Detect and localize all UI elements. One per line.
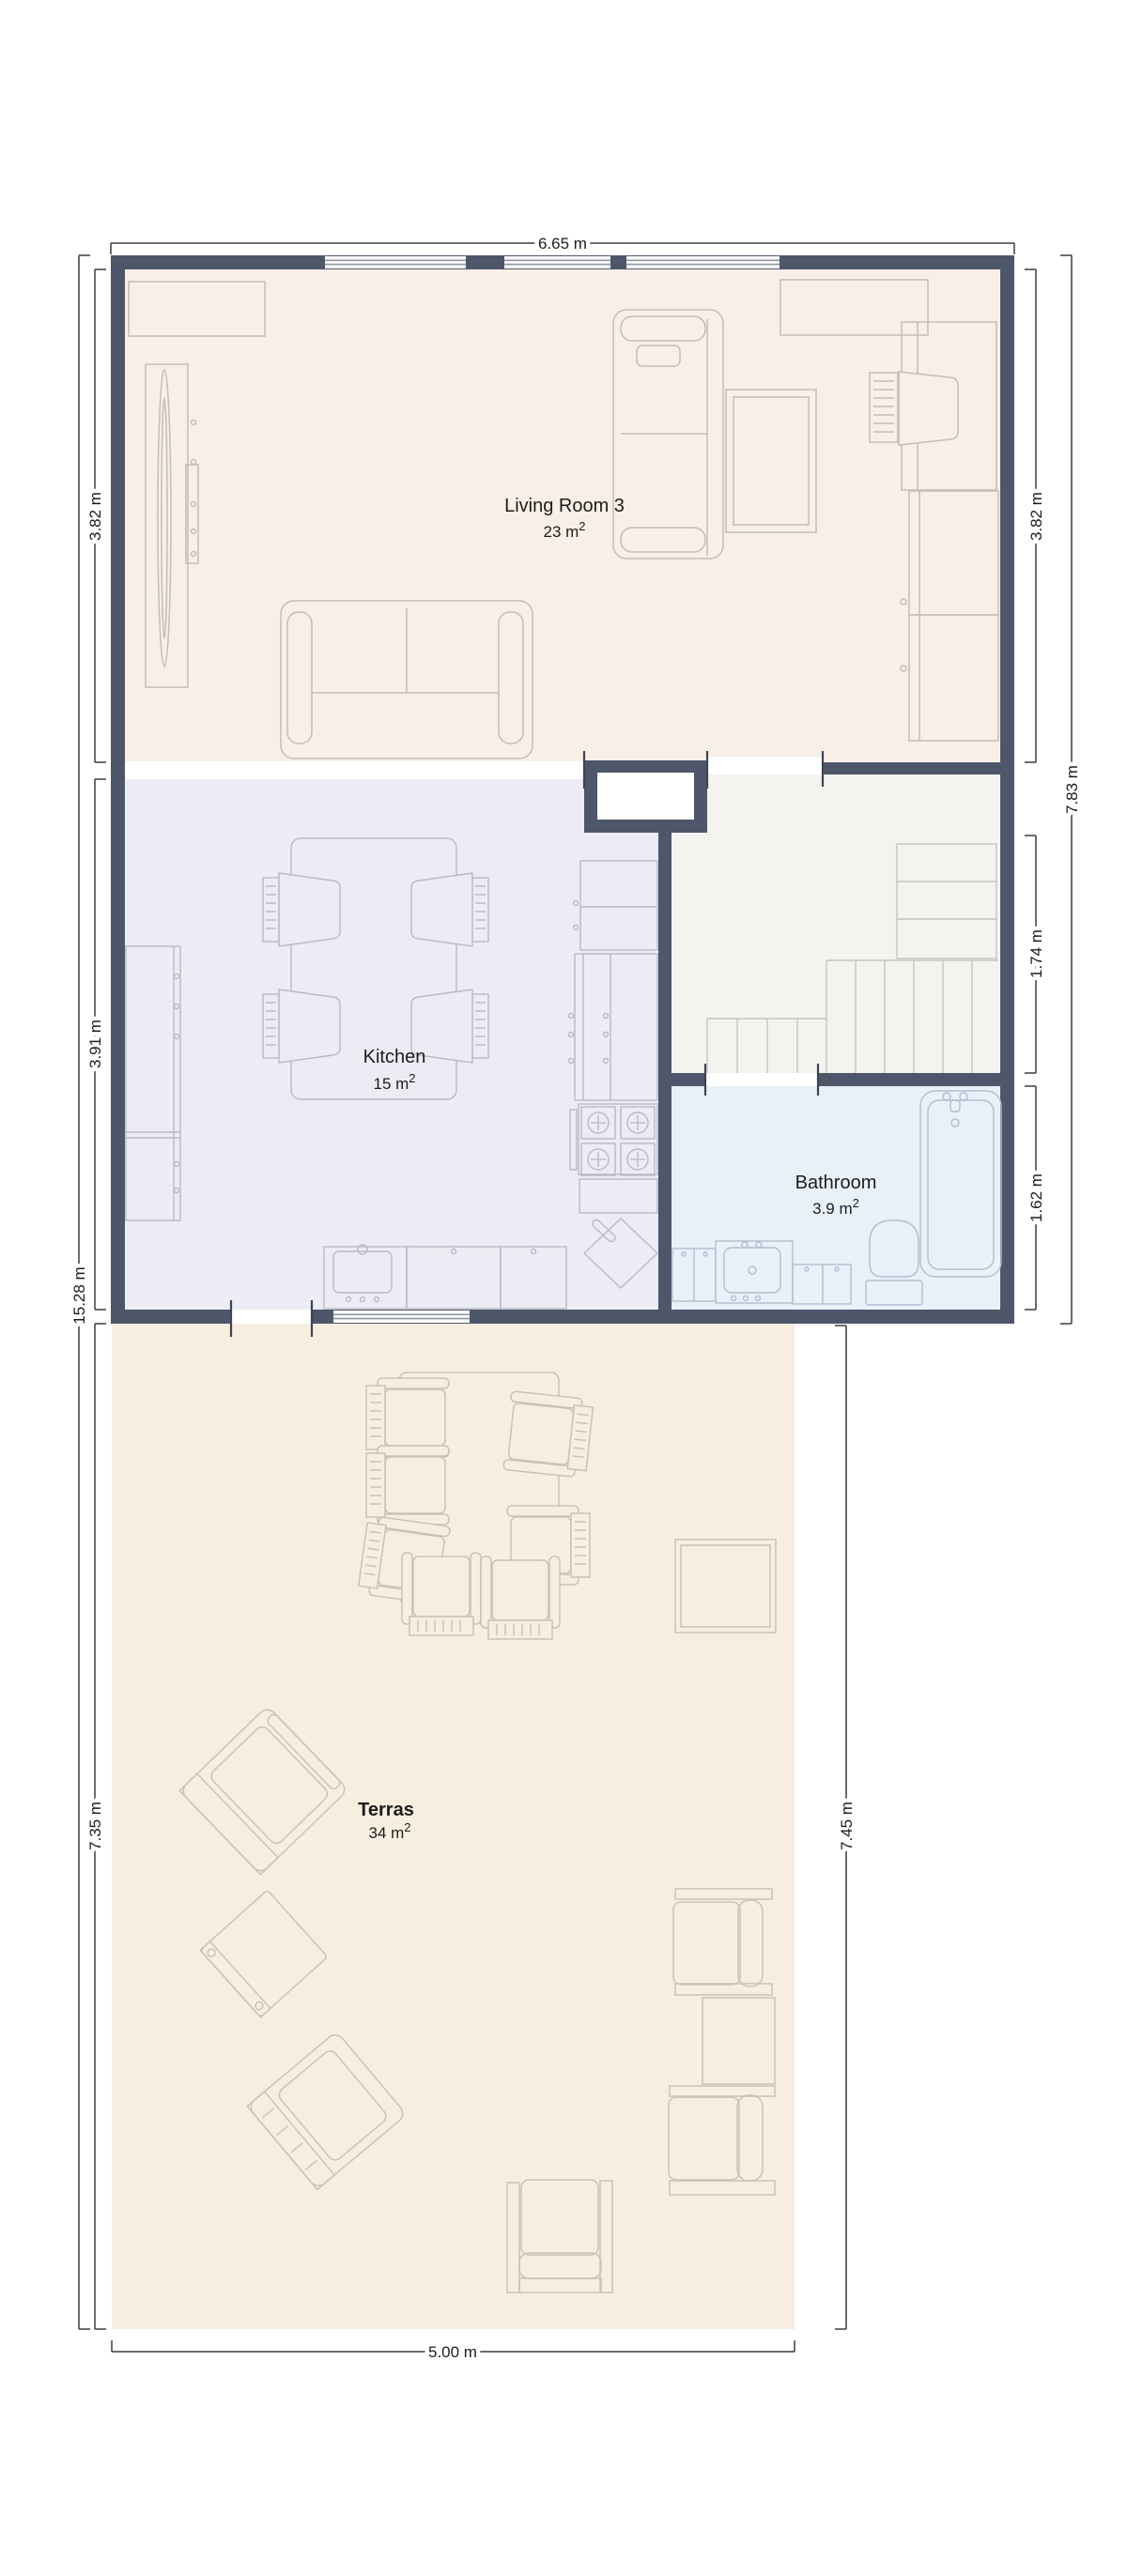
terrace-chair-bottom-2 <box>481 1556 560 1639</box>
floor-plan-canvas: Living Room 3 23 m2 Kitchen 15 m2 Bathro… <box>0 0 1127 2576</box>
svg-text:5.00 m: 5.00 m <box>428 2343 477 2361</box>
bathroom-area: 3.9 m2 <box>812 1196 859 1218</box>
wall-left <box>111 255 125 1324</box>
kitchen-chair-top-left <box>263 873 340 946</box>
wall-kitchen-hall-divider <box>658 826 672 1310</box>
svg-text:3.91 m: 3.91 m <box>86 1020 104 1068</box>
window-top-1 <box>325 256 466 268</box>
hall-opening-floor <box>707 757 823 774</box>
living-kitchen-open-boundary <box>125 761 584 779</box>
terrace-label: Terras <box>358 1800 414 1820</box>
desk-chair <box>870 372 958 445</box>
wall-right <box>1000 255 1014 1324</box>
kitchen-floor <box>125 779 658 1310</box>
svg-text:7.35 m: 7.35 m <box>86 1802 104 1850</box>
svg-text:7.45 m: 7.45 m <box>838 1802 856 1850</box>
closet <box>584 760 707 833</box>
window-top-2 <box>504 256 610 268</box>
svg-text:15.28 m: 15.28 m <box>70 1266 88 1324</box>
bathroom-label: Bathroom <box>795 1173 877 1193</box>
floor-plan-page: Living Room 3 23 m2 Kitchen 15 m2 Bathro… <box>0 0 1127 2576</box>
wall-bathroom-top-left <box>672 1073 705 1086</box>
wall-bathroom-top-right <box>818 1073 1000 1086</box>
window-top-3 <box>626 256 780 268</box>
wall-living-hall <box>823 762 1000 774</box>
kitchen-chair-bottom-left <box>263 989 340 1063</box>
svg-text:1.62 m: 1.62 m <box>1027 1173 1045 1222</box>
living-room-label: Living Room 3 <box>504 496 625 516</box>
terrace-chair-right-1 <box>503 1391 594 1479</box>
terrace-chair-left-2 <box>366 1446 449 1525</box>
kitchen-chair-top-right <box>411 873 488 946</box>
hall-floor <box>672 774 1000 1073</box>
svg-text:6.65 m: 6.65 m <box>538 235 587 253</box>
svg-text:3.82 m: 3.82 m <box>1027 492 1045 541</box>
svg-text:1.74 m: 1.74 m <box>1027 929 1045 978</box>
svg-text:3.82 m: 3.82 m <box>86 492 104 541</box>
svg-text:7.83 m: 7.83 m <box>1063 765 1081 814</box>
window-kitchen-bottom <box>333 1311 470 1323</box>
closet-interior <box>597 773 694 820</box>
terrace-chair-bottom-1 <box>402 1553 481 1635</box>
kitchen-label: Kitchen <box>363 1047 426 1067</box>
